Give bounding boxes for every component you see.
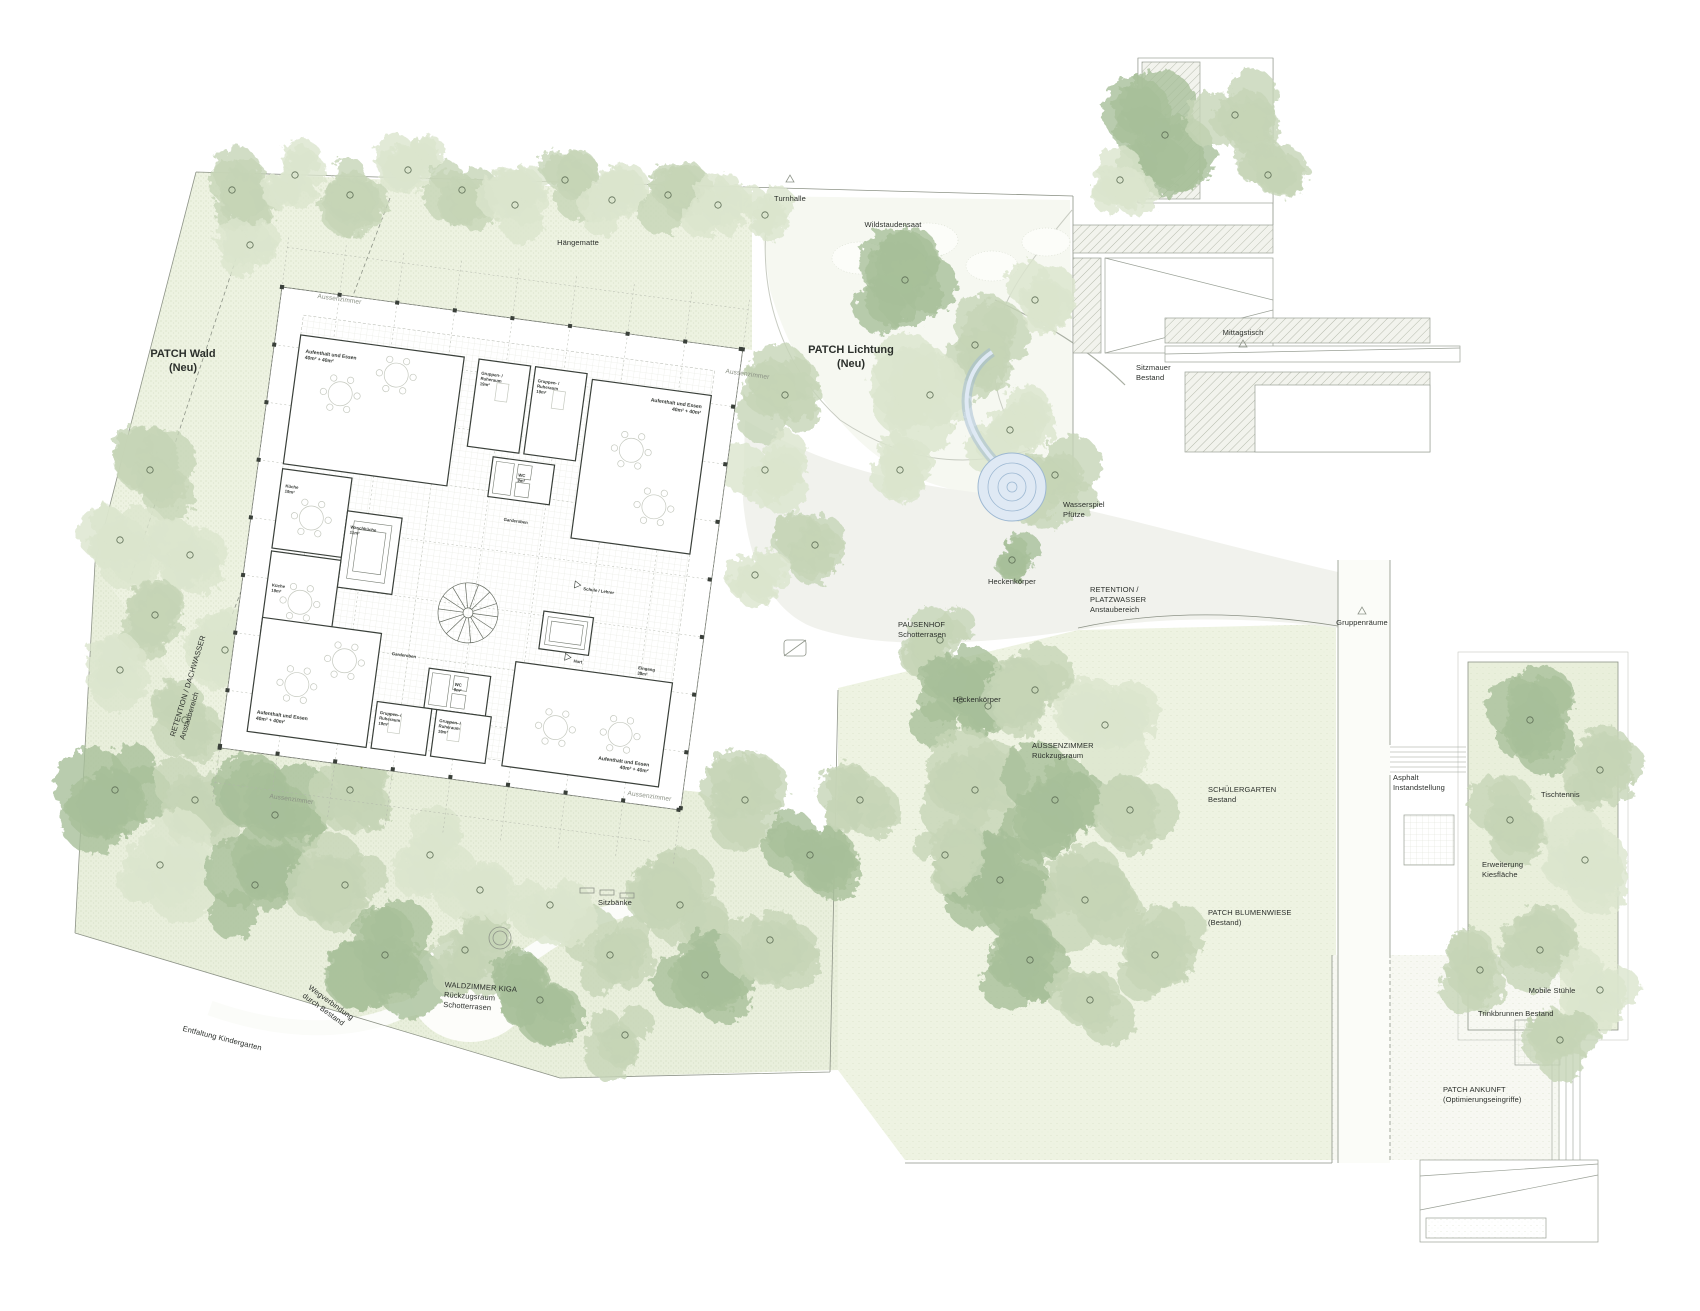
site-plan-page: Aufenthalt und Essen40m² + 40m²Gruppen- … bbox=[0, 0, 1700, 1311]
room-technik bbox=[539, 611, 594, 655]
site-plan-svg: Aufenthalt und Essen40m² + 40m²Gruppen- … bbox=[0, 0, 1700, 1311]
tischtennis-table bbox=[1404, 815, 1454, 865]
room-waschkueche bbox=[337, 511, 402, 595]
roof-marker-turnhalle bbox=[786, 175, 794, 182]
corridor-path bbox=[1338, 560, 1390, 1163]
room-kueche-1 bbox=[272, 469, 352, 558]
room-aufenthalt-bl bbox=[247, 617, 381, 747]
